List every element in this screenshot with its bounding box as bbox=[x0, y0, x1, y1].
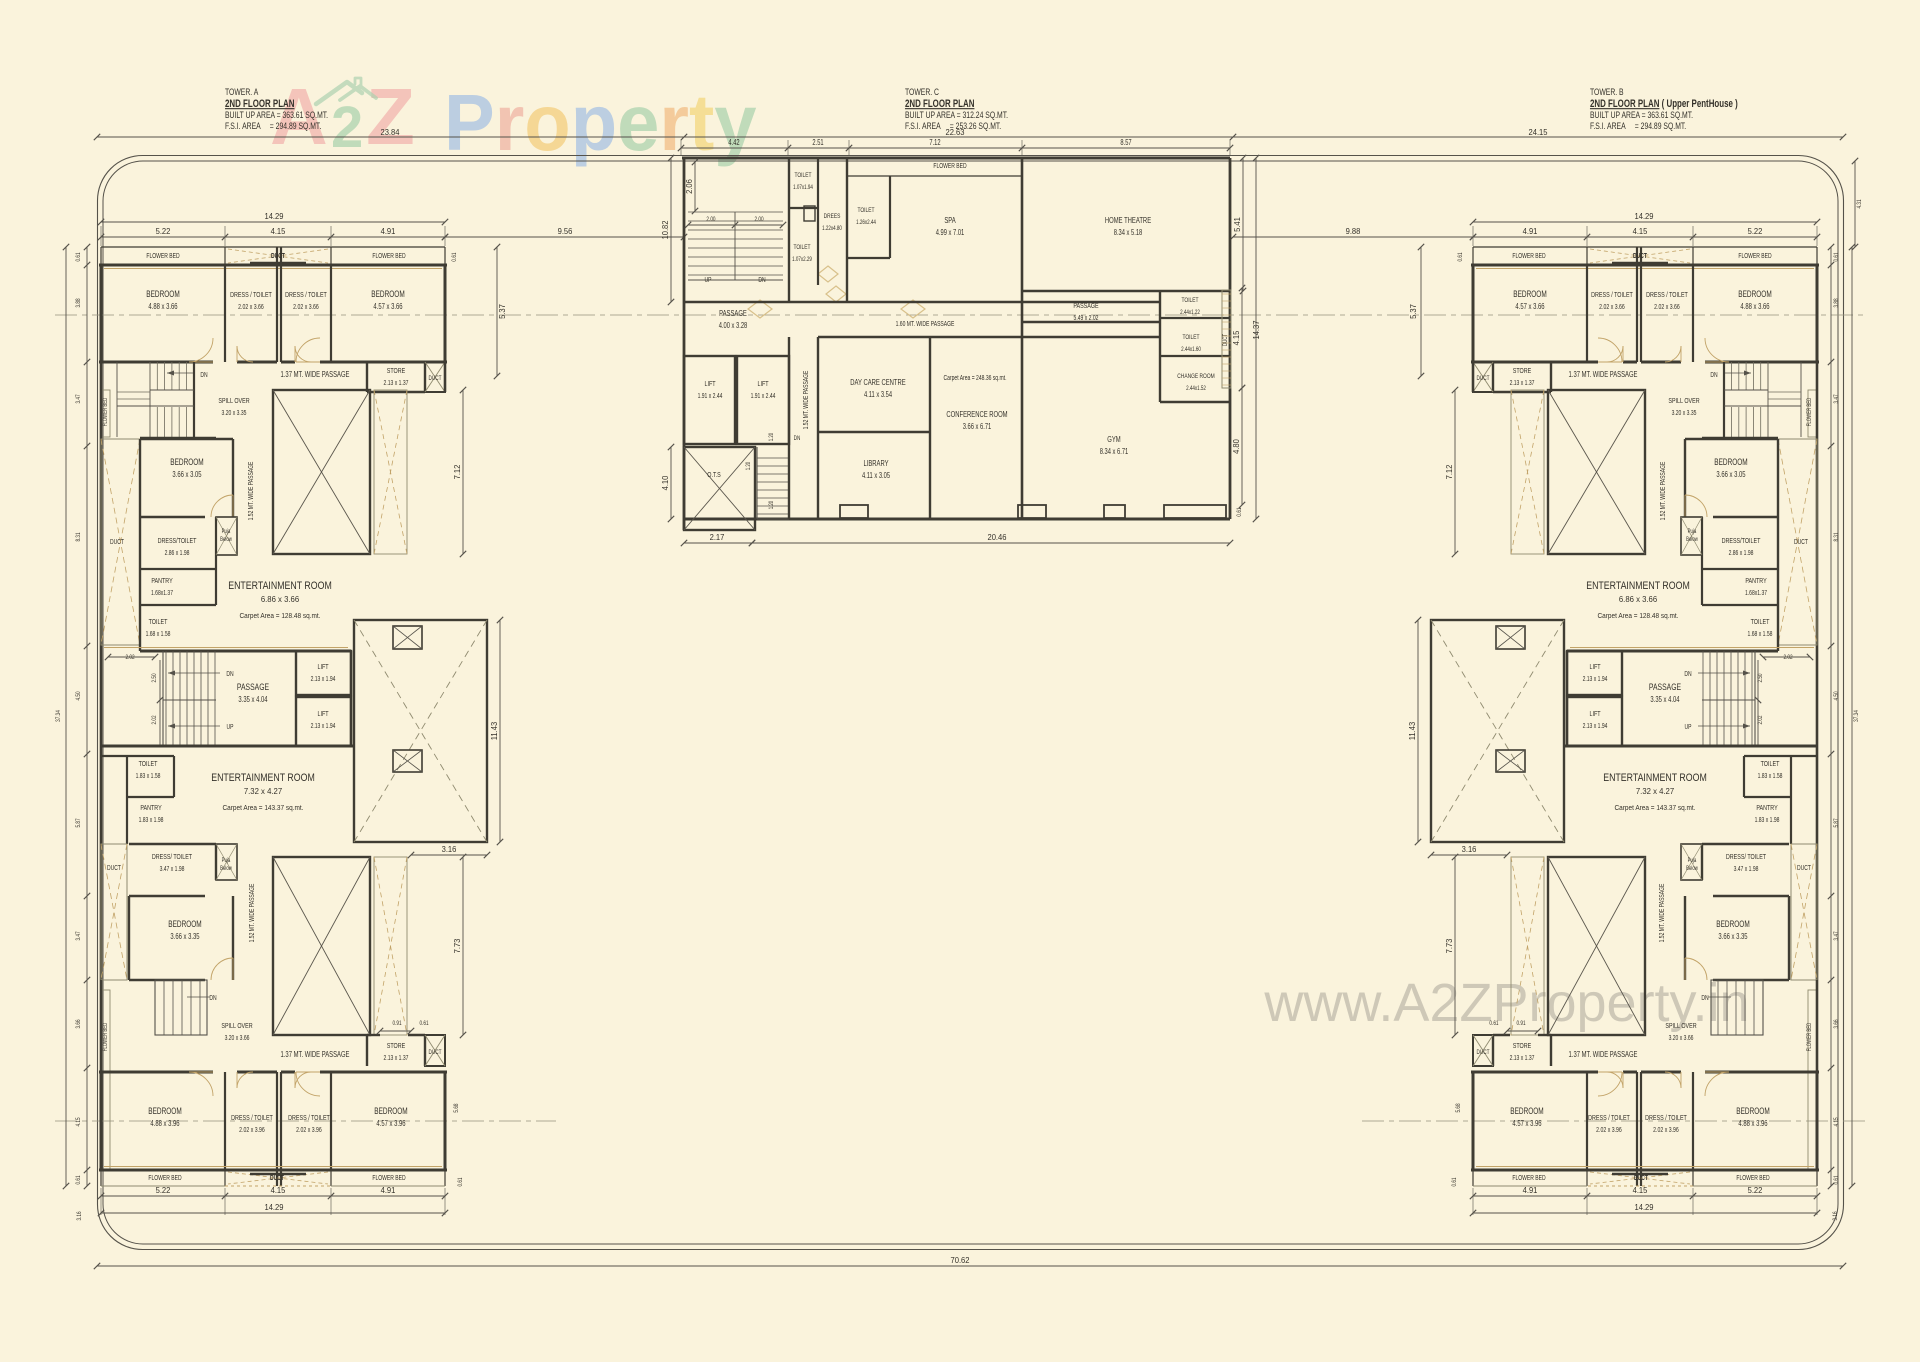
svg-text:2.02 x 3.66: 2.02 x 3.66 bbox=[1599, 303, 1625, 311]
svg-text:1.68 x 1.58: 1.68 x 1.58 bbox=[1748, 630, 1773, 638]
svg-text:24.15: 24.15 bbox=[1528, 128, 1548, 137]
svg-text:2.02 x 3.66: 2.02 x 3.66 bbox=[1654, 303, 1680, 311]
svg-text:0.61: 0.61 bbox=[1833, 252, 1840, 261]
svg-text:LIFT: LIFT bbox=[1589, 663, 1600, 671]
svg-text:FLOWER BED: FLOWER BED bbox=[1806, 1023, 1813, 1052]
svg-text:DUCT: DUCT bbox=[1477, 375, 1490, 382]
svg-text:0.61: 0.61 bbox=[419, 1020, 428, 1027]
svg-text:3.16: 3.16 bbox=[1462, 845, 1477, 854]
svg-text:4.10: 4.10 bbox=[661, 475, 670, 490]
svg-text:TOILET: TOILET bbox=[139, 760, 158, 768]
svg-text:3.20 x 3.66: 3.20 x 3.66 bbox=[1669, 1034, 1694, 1042]
svg-text:2ND FLOOR PLAN: 2ND FLOOR PLAN bbox=[225, 98, 295, 111]
svg-text:PASSAGE: PASSAGE bbox=[1649, 682, 1682, 692]
svg-text:TOWER. C: TOWER. C bbox=[905, 87, 939, 97]
svg-text:3.20 x 3.66: 3.20 x 3.66 bbox=[225, 1034, 250, 1042]
svg-text:3.35 x 4.04: 3.35 x 4.04 bbox=[1650, 695, 1679, 704]
svg-text:0.91: 0.91 bbox=[392, 1020, 401, 1027]
svg-text:4.15: 4.15 bbox=[1232, 330, 1241, 345]
svg-text:DUCT: DUCT bbox=[1222, 333, 1229, 346]
svg-text:0.91: 0.91 bbox=[1516, 1020, 1525, 1027]
svg-text:BEDROOM: BEDROOM bbox=[1714, 457, 1747, 467]
svg-text:TOWER. A: TOWER. A bbox=[225, 87, 259, 97]
svg-text:TOILET: TOILET bbox=[793, 244, 810, 251]
svg-text:O.T.S: O.T.S bbox=[707, 471, 721, 479]
svg-text:FLOWER BED: FLOWER BED bbox=[1806, 398, 1813, 427]
svg-text:DRESS / TOILET: DRESS / TOILET bbox=[1588, 1114, 1630, 1122]
svg-text:DREES: DREES bbox=[824, 213, 841, 220]
svg-text:LIFT: LIFT bbox=[317, 710, 328, 718]
svg-text:HOME THEATRE: HOME THEATRE bbox=[1105, 216, 1151, 225]
svg-text:3.66 x 3.05: 3.66 x 3.05 bbox=[172, 470, 201, 479]
svg-text:DUCT: DUCT bbox=[1634, 1174, 1648, 1182]
svg-text:1.83 x 1.58: 1.83 x 1.58 bbox=[136, 772, 161, 780]
svg-text:5.22: 5.22 bbox=[1748, 1186, 1763, 1195]
svg-text:20.46: 20.46 bbox=[987, 533, 1006, 542]
svg-text:F.S.I. AREA = 294.89 SQ.M: F.S.I. AREA = 294.89 SQ.MT. bbox=[225, 121, 321, 131]
svg-text:ENTERTAINMENT ROOM: ENTERTAINMENT ROOM bbox=[211, 772, 315, 784]
svg-text:1.68x1.37: 1.68x1.37 bbox=[1745, 589, 1768, 597]
svg-text:Carpet Area = 128.48 sq.mt.: Carpet Area = 128.48 sq.mt. bbox=[1598, 613, 1679, 620]
svg-text:1.07x2.29: 1.07x2.29 bbox=[792, 256, 812, 263]
svg-text:1.52 MT. WIDE PASSAGE: 1.52 MT. WIDE PASSAGE bbox=[248, 884, 256, 943]
svg-text:3.20 x 3.35: 3.20 x 3.35 bbox=[222, 409, 247, 417]
svg-text:9.88: 9.88 bbox=[1346, 227, 1361, 236]
svg-text:10.82: 10.82 bbox=[661, 220, 670, 239]
svg-text:FLOWER BED: FLOWER BED bbox=[1736, 1174, 1770, 1182]
svg-text:SPILL OVER: SPILL OVER bbox=[221, 1022, 252, 1030]
svg-text:2: 2 bbox=[331, 95, 363, 160]
svg-text:2.50: 2.50 bbox=[1757, 673, 1764, 682]
svg-text:4.57 x 3.96: 4.57 x 3.96 bbox=[1512, 1119, 1541, 1128]
svg-text:3.47: 3.47 bbox=[75, 931, 82, 940]
svg-text:2ND FLOOR PLAN: 2ND FLOOR PLAN bbox=[905, 98, 975, 111]
svg-text:1.20: 1.20 bbox=[768, 433, 775, 441]
svg-text:0.61: 0.61 bbox=[1833, 1175, 1840, 1184]
svg-text:FLOWER BED: FLOWER BED bbox=[1738, 252, 1772, 260]
svg-text:37.34: 37.34 bbox=[55, 710, 62, 722]
svg-text:7.12: 7.12 bbox=[1445, 465, 1454, 480]
svg-text:4.15: 4.15 bbox=[75, 1117, 82, 1126]
svg-text:2.13 x 1.94: 2.13 x 1.94 bbox=[311, 675, 336, 683]
svg-text:7.32 x 4.27: 7.32 x 4.27 bbox=[244, 787, 283, 796]
svg-text:70.62: 70.62 bbox=[950, 1256, 969, 1265]
svg-text:2.02 x 3.66: 2.02 x 3.66 bbox=[293, 303, 319, 311]
svg-text:2.13 x 1.37: 2.13 x 1.37 bbox=[1510, 379, 1535, 387]
svg-text:2.13 x 1.37: 2.13 x 1.37 bbox=[384, 1054, 409, 1062]
svg-text:FLOWER BED: FLOWER BED bbox=[372, 252, 406, 260]
svg-text:DRESS / TOILET: DRESS / TOILET bbox=[230, 291, 272, 299]
svg-text:5.68: 5.68 bbox=[453, 1103, 460, 1112]
svg-text:3.16: 3.16 bbox=[76, 1211, 83, 1220]
svg-text:3.66 x 6.71: 3.66 x 6.71 bbox=[963, 423, 992, 431]
svg-text:1.83 x 1.58: 1.83 x 1.58 bbox=[1758, 772, 1783, 780]
svg-text:3.66: 3.66 bbox=[1833, 1019, 1840, 1028]
svg-text:4.11 x 3.54: 4.11 x 3.54 bbox=[864, 391, 892, 399]
svg-text:11.43: 11.43 bbox=[1408, 722, 1417, 740]
svg-text:1.37 MT. WIDE PASSAGE: 1.37 MT. WIDE PASSAGE bbox=[1569, 370, 1638, 379]
svg-text:1.83 x 1.98: 1.83 x 1.98 bbox=[139, 816, 164, 824]
svg-text:1.37 MT. WIDE PASSAGE: 1.37 MT. WIDE PASSAGE bbox=[281, 370, 350, 379]
svg-text:Puja: Puja bbox=[1688, 857, 1697, 864]
svg-text:0.61: 0.61 bbox=[457, 1177, 464, 1186]
svg-text:3.47: 3.47 bbox=[75, 394, 82, 403]
svg-text:BEDROOM: BEDROOM bbox=[1716, 919, 1749, 929]
svg-text:4.57 x 3.66: 4.57 x 3.66 bbox=[373, 302, 402, 311]
svg-text:F.S.I. AREA = 253.26 SQ.M: F.S.I. AREA = 253.26 SQ.MT. bbox=[905, 121, 1001, 131]
svg-text:4.88 x 3.66: 4.88 x 3.66 bbox=[1740, 302, 1769, 311]
svg-text:Puja: Puja bbox=[222, 857, 231, 864]
svg-text:FLOWER BED: FLOWER BED bbox=[1512, 252, 1546, 260]
svg-text:2.13 x 1.37: 2.13 x 1.37 bbox=[1510, 1054, 1535, 1062]
svg-text:DUCT: DUCT bbox=[1633, 252, 1647, 260]
svg-text:0.61: 0.61 bbox=[451, 252, 458, 261]
svg-text:3.47 x 1.98: 3.47 x 1.98 bbox=[1734, 865, 1759, 873]
svg-text:4.42: 4.42 bbox=[728, 139, 739, 147]
svg-text:7.73: 7.73 bbox=[453, 939, 462, 954]
svg-text:BEDROOM: BEDROOM bbox=[168, 919, 201, 929]
svg-text:DRESS / TOILET: DRESS / TOILET bbox=[285, 291, 327, 299]
svg-text:Below: Below bbox=[220, 865, 232, 872]
svg-text:UP: UP bbox=[1685, 723, 1692, 731]
svg-text:TOILET: TOILET bbox=[149, 618, 168, 626]
svg-text:5.87: 5.87 bbox=[1833, 818, 1840, 827]
svg-text:2.44x1.60: 2.44x1.60 bbox=[1181, 346, 1201, 353]
svg-text:4.11 x 3.05: 4.11 x 3.05 bbox=[862, 472, 890, 480]
svg-text:STORE: STORE bbox=[1513, 1042, 1532, 1050]
svg-text:STORE: STORE bbox=[387, 1042, 406, 1050]
svg-text:LIFT: LIFT bbox=[1589, 710, 1600, 718]
svg-text:BUILT UP AREA = 363.61 SQ.MT.: BUILT UP AREA = 363.61 SQ.MT. bbox=[225, 110, 328, 120]
svg-text:PANTRY: PANTRY bbox=[140, 804, 162, 812]
svg-text:2.00: 2.00 bbox=[754, 216, 763, 223]
svg-text:4.57 x 3.66: 4.57 x 3.66 bbox=[1515, 302, 1544, 311]
svg-text:DUCT: DUCT bbox=[1794, 538, 1808, 546]
svg-text:4.91: 4.91 bbox=[381, 1186, 396, 1195]
svg-text:FLOWER BED: FLOWER BED bbox=[933, 162, 967, 170]
svg-text:2.44x1.52: 2.44x1.52 bbox=[1186, 385, 1206, 392]
svg-text:FLOWER BED: FLOWER BED bbox=[102, 398, 109, 427]
svg-text:PANTRY: PANTRY bbox=[1745, 577, 1767, 585]
svg-text:FLOWER BED: FLOWER BED bbox=[372, 1174, 406, 1182]
svg-text:1.26x2.44: 1.26x2.44 bbox=[856, 219, 876, 226]
svg-text:SPILL OVER: SPILL OVER bbox=[218, 397, 249, 405]
svg-text:7.73: 7.73 bbox=[1445, 939, 1454, 954]
svg-text:DUCT: DUCT bbox=[429, 1049, 442, 1056]
svg-text:4.15: 4.15 bbox=[271, 227, 286, 236]
svg-text:3.16: 3.16 bbox=[442, 845, 457, 854]
svg-text:4.31: 4.31 bbox=[1856, 199, 1863, 208]
svg-text:PASSAGE: PASSAGE bbox=[1073, 302, 1099, 310]
svg-text:11.43: 11.43 bbox=[490, 722, 499, 740]
svg-text:DN: DN bbox=[1710, 371, 1717, 379]
svg-text:1.83 x 1.98: 1.83 x 1.98 bbox=[1755, 816, 1780, 824]
svg-text:DRESS / TOILET: DRESS / TOILET bbox=[1645, 1114, 1687, 1122]
svg-text:3.66: 3.66 bbox=[75, 1019, 82, 1028]
svg-text:1.07x1.94: 1.07x1.94 bbox=[793, 184, 813, 191]
svg-text:DN: DN bbox=[1684, 670, 1691, 678]
svg-text:1.37 MT. WIDE PASSAGE: 1.37 MT. WIDE PASSAGE bbox=[281, 1050, 350, 1059]
svg-text:1.52 MT. WIDE PASSAGE: 1.52 MT. WIDE PASSAGE bbox=[247, 462, 255, 521]
svg-text:Puja: Puja bbox=[222, 528, 231, 535]
svg-text:2.86 x 1.98: 2.86 x 1.98 bbox=[165, 549, 190, 557]
svg-text:7.32 x 4.27: 7.32 x 4.27 bbox=[1636, 787, 1675, 796]
svg-text:2.44x1.22: 2.44x1.22 bbox=[1180, 309, 1200, 316]
svg-text:Carpet Area = 248.36 sq.mt.: Carpet Area = 248.36 sq.mt. bbox=[944, 374, 1007, 382]
svg-text:5.22: 5.22 bbox=[1748, 227, 1763, 236]
svg-text:4.50: 4.50 bbox=[75, 691, 82, 700]
svg-text:BEDROOM: BEDROOM bbox=[374, 1106, 407, 1116]
svg-text:UP: UP bbox=[227, 723, 234, 731]
svg-text:1.60 MT. WIDE PASSAGE: 1.60 MT. WIDE PASSAGE bbox=[896, 320, 955, 328]
svg-text:0.61: 0.61 bbox=[75, 252, 82, 261]
svg-text:DUCT: DUCT bbox=[107, 864, 121, 872]
svg-text:4.15: 4.15 bbox=[1633, 1186, 1648, 1195]
svg-text:Z: Z bbox=[366, 72, 415, 161]
svg-text:4.00 x 3.28: 4.00 x 3.28 bbox=[719, 322, 748, 330]
svg-text:DN: DN bbox=[794, 435, 801, 442]
svg-text:DUCT: DUCT bbox=[271, 252, 285, 260]
svg-text:5.87: 5.87 bbox=[75, 818, 82, 827]
svg-text:3.66 x 3.35: 3.66 x 3.35 bbox=[170, 932, 199, 941]
svg-text:3.66 x 3.05: 3.66 x 3.05 bbox=[1716, 470, 1745, 479]
svg-text:3.35 x 4.04: 3.35 x 4.04 bbox=[238, 695, 267, 704]
svg-text:Carpet Area = 143.37 sq.mt.: Carpet Area = 143.37 sq.mt. bbox=[223, 805, 304, 812]
svg-text:SPILL OVER: SPILL OVER bbox=[1668, 397, 1699, 405]
svg-text:14.37: 14.37 bbox=[1252, 320, 1261, 339]
svg-text:DN: DN bbox=[758, 276, 765, 284]
svg-text:1.52 MT. WIDE PASSAGE: 1.52 MT. WIDE PASSAGE bbox=[1659, 462, 1667, 521]
svg-text:4.15: 4.15 bbox=[1633, 227, 1648, 236]
svg-text:1.20: 1.20 bbox=[745, 462, 752, 470]
svg-text:TOILET: TOILET bbox=[1751, 618, 1770, 626]
svg-text:14.29: 14.29 bbox=[264, 1203, 283, 1212]
svg-text:BEDROOM: BEDROOM bbox=[371, 289, 404, 299]
svg-text:3.66 x 3.35: 3.66 x 3.35 bbox=[1718, 932, 1747, 941]
svg-text:2.02: 2.02 bbox=[151, 715, 158, 724]
svg-text:ENTERTAINMENT ROOM: ENTERTAINMENT ROOM bbox=[1603, 772, 1707, 784]
svg-text:23.84: 23.84 bbox=[380, 128, 400, 137]
svg-text:2ND FLOOR PLAN ( Upper PentHou: 2ND FLOOR PLAN ( Upper PentHouse ) bbox=[1590, 98, 1738, 111]
svg-text:Below: Below bbox=[1686, 865, 1698, 872]
svg-text:4.91: 4.91 bbox=[381, 227, 396, 236]
svg-text:1.91 x 2.44: 1.91 x 2.44 bbox=[751, 392, 776, 400]
svg-text:FLOWER BED: FLOWER BED bbox=[148, 1174, 182, 1182]
svg-text:TOILET: TOILET bbox=[1761, 760, 1780, 768]
svg-text:0.61: 0.61 bbox=[1236, 507, 1243, 516]
svg-text:2.51: 2.51 bbox=[812, 139, 823, 147]
svg-text:Puja: Puja bbox=[1688, 528, 1697, 535]
svg-text:BEDROOM: BEDROOM bbox=[1510, 1106, 1543, 1116]
svg-text:DUCT: DUCT bbox=[429, 375, 442, 382]
svg-text:5.49 x 2.02: 5.49 x 2.02 bbox=[1074, 314, 1099, 322]
svg-text:3.88: 3.88 bbox=[1833, 298, 1840, 307]
svg-text:TOILET: TOILET bbox=[1183, 334, 1200, 341]
svg-text:TOILET: TOILET bbox=[794, 172, 811, 179]
svg-text:BEDROOM: BEDROOM bbox=[1736, 1106, 1769, 1116]
svg-text:4.80: 4.80 bbox=[1232, 438, 1241, 453]
svg-text:0.61: 0.61 bbox=[1489, 1020, 1498, 1027]
svg-text:4.15: 4.15 bbox=[1833, 1117, 1840, 1126]
svg-text:DN: DN bbox=[200, 371, 207, 379]
svg-text:DAY CARE CENTRE: DAY CARE CENTRE bbox=[850, 378, 906, 387]
svg-text:2.13 x 1.94: 2.13 x 1.94 bbox=[1583, 675, 1608, 683]
svg-text:LIFT: LIFT bbox=[317, 663, 328, 671]
svg-text:DRESS / TOILET: DRESS / TOILET bbox=[231, 1114, 273, 1122]
svg-text:BUILT UP AREA = 312.24 SQ.MT.: BUILT UP AREA = 312.24 SQ.MT. bbox=[905, 110, 1008, 120]
svg-text:6.86 x 3.66: 6.86 x 3.66 bbox=[261, 595, 300, 604]
svg-text:PASSAGE: PASSAGE bbox=[237, 682, 270, 692]
svg-text:2.02 x 3.96: 2.02 x 3.96 bbox=[1653, 1126, 1679, 1134]
svg-text:LIFT: LIFT bbox=[757, 380, 768, 388]
svg-text:BEDROOM: BEDROOM bbox=[1738, 289, 1771, 299]
svg-text:7.12: 7.12 bbox=[929, 139, 940, 147]
svg-text:2.06: 2.06 bbox=[685, 179, 694, 194]
svg-text:DRESS / TOILET: DRESS / TOILET bbox=[288, 1114, 330, 1122]
svg-text:14.29: 14.29 bbox=[264, 212, 283, 221]
svg-text:CHANGE ROOM: CHANGE ROOM bbox=[1177, 373, 1214, 380]
svg-text:1.91 x 2.44: 1.91 x 2.44 bbox=[698, 392, 723, 400]
svg-text:DN: DN bbox=[1701, 994, 1708, 1002]
svg-text:4.50: 4.50 bbox=[1833, 691, 1840, 700]
svg-text:0.61: 0.61 bbox=[75, 1175, 82, 1184]
svg-text:8.34 x 5.18: 8.34 x 5.18 bbox=[1114, 229, 1143, 237]
svg-text:DUCT: DUCT bbox=[1477, 1049, 1490, 1056]
svg-text:8.57: 8.57 bbox=[1120, 139, 1131, 147]
svg-text:LIBRARY: LIBRARY bbox=[863, 459, 888, 468]
svg-text:1.68x1.37: 1.68x1.37 bbox=[151, 589, 174, 597]
svg-text:2.02: 2.02 bbox=[125, 654, 134, 661]
svg-text:14.29: 14.29 bbox=[1634, 212, 1653, 221]
svg-text:DUCT: DUCT bbox=[1797, 864, 1811, 872]
svg-text:4.15: 4.15 bbox=[271, 1186, 286, 1195]
svg-text:DUCT: DUCT bbox=[270, 1174, 284, 1182]
svg-text:BEDROOM: BEDROOM bbox=[146, 289, 179, 299]
svg-text:STORE: STORE bbox=[387, 367, 406, 375]
svg-text:Carpet Area = 128.48 sq.mt.: Carpet Area = 128.48 sq.mt. bbox=[240, 613, 321, 620]
svg-text:BEDROOM: BEDROOM bbox=[170, 457, 203, 467]
svg-text:SPILL OVER: SPILL OVER bbox=[1665, 1022, 1696, 1030]
svg-text:3.47 x 1.98: 3.47 x 1.98 bbox=[160, 865, 185, 873]
svg-text:4.88 x 3.96: 4.88 x 3.96 bbox=[150, 1119, 179, 1128]
svg-text:F.S.I. AREA = 294.89 SQ.M: F.S.I. AREA = 294.89 SQ.MT. bbox=[1590, 121, 1686, 131]
svg-text:FLOWER BED: FLOWER BED bbox=[1512, 1174, 1546, 1182]
svg-text:8.31: 8.31 bbox=[75, 532, 82, 541]
svg-text:2.13 x 1.94: 2.13 x 1.94 bbox=[311, 722, 336, 730]
svg-text:1.52 MT. WIDE PASSAGE: 1.52 MT. WIDE PASSAGE bbox=[1658, 884, 1666, 943]
svg-text:5.37: 5.37 bbox=[498, 304, 507, 319]
svg-text:PANTRY: PANTRY bbox=[151, 577, 173, 585]
svg-text:4.91: 4.91 bbox=[1523, 227, 1538, 236]
svg-text:2.02 x 3.66: 2.02 x 3.66 bbox=[238, 303, 264, 311]
svg-text:DUCT: DUCT bbox=[110, 538, 124, 546]
svg-text:2.02: 2.02 bbox=[1757, 715, 1764, 724]
svg-text:5.68: 5.68 bbox=[1455, 1103, 1462, 1112]
svg-text:8.31: 8.31 bbox=[1833, 532, 1840, 541]
svg-text:1.22x4.80: 1.22x4.80 bbox=[822, 225, 842, 232]
svg-text:8.34 x 6.71: 8.34 x 6.71 bbox=[1100, 448, 1129, 456]
svg-text:2.17: 2.17 bbox=[710, 533, 725, 542]
svg-text:3.47: 3.47 bbox=[1833, 931, 1840, 940]
svg-text:3.47: 3.47 bbox=[1833, 394, 1840, 403]
svg-text:ENTERTAINMENT ROOM: ENTERTAINMENT ROOM bbox=[1586, 580, 1690, 592]
svg-text:DRESS / TOILET: DRESS / TOILET bbox=[1591, 291, 1633, 299]
svg-text:14.29: 14.29 bbox=[1634, 1203, 1653, 1212]
svg-text:3.88: 3.88 bbox=[75, 298, 82, 307]
svg-text:2.00: 2.00 bbox=[706, 216, 715, 223]
svg-text:PANTRY: PANTRY bbox=[1756, 804, 1778, 812]
svg-text:FLOWER BED: FLOWER BED bbox=[146, 252, 180, 260]
svg-text:2.02 x 3.96: 2.02 x 3.96 bbox=[239, 1126, 265, 1134]
svg-text:DRESS / TOILET: DRESS / TOILET bbox=[1646, 291, 1688, 299]
svg-text:5.22: 5.22 bbox=[156, 227, 171, 236]
svg-text:37.34: 37.34 bbox=[1853, 710, 1860, 722]
svg-text:Below: Below bbox=[1686, 536, 1698, 543]
svg-text:2.86 x 1.98: 2.86 x 1.98 bbox=[1729, 549, 1754, 557]
svg-text:5.22: 5.22 bbox=[156, 1186, 171, 1195]
svg-text:1.37 MT. WIDE PASSAGE: 1.37 MT. WIDE PASSAGE bbox=[1569, 1050, 1638, 1059]
svg-text:DN: DN bbox=[226, 670, 233, 678]
svg-text:BEDROOM: BEDROOM bbox=[148, 1106, 181, 1116]
svg-text:TOILET: TOILET bbox=[1181, 297, 1198, 304]
svg-text:4.91: 4.91 bbox=[1523, 1186, 1538, 1195]
svg-text:4.57 x 3.96: 4.57 x 3.96 bbox=[376, 1119, 405, 1128]
svg-text:DRESS/TOILET: DRESS/TOILET bbox=[1722, 537, 1761, 545]
svg-text:Property: Property bbox=[444, 77, 757, 167]
svg-text:3.16: 3.16 bbox=[1832, 1211, 1839, 1220]
svg-text:TOWER. B: TOWER. B bbox=[1590, 87, 1624, 97]
svg-text:BUILT UP AREA = 363.61 SQ.MT.: BUILT UP AREA = 363.61 SQ.MT. bbox=[1590, 110, 1693, 120]
svg-text:STORE: STORE bbox=[1513, 367, 1532, 375]
svg-text:TOILET: TOILET bbox=[857, 207, 874, 214]
svg-text:CONFERENCE ROOM: CONFERENCE ROOM bbox=[946, 410, 1007, 419]
svg-text:1.68 x 1.58: 1.68 x 1.58 bbox=[146, 630, 171, 638]
svg-text:DN: DN bbox=[209, 994, 216, 1002]
svg-text:DRESS/ TOILET: DRESS/ TOILET bbox=[152, 853, 192, 861]
svg-text:9.56: 9.56 bbox=[558, 227, 573, 236]
svg-text:1.52 MT. WIDE PASSAGE: 1.52 MT. WIDE PASSAGE bbox=[802, 371, 810, 430]
svg-text:GYM: GYM bbox=[1107, 435, 1120, 444]
svg-text:PASSAGE: PASSAGE bbox=[719, 309, 747, 318]
svg-text:BEDROOM: BEDROOM bbox=[1513, 289, 1546, 299]
svg-text:7.12: 7.12 bbox=[453, 465, 462, 480]
svg-text:2.02: 2.02 bbox=[1783, 654, 1792, 661]
svg-text:0.61: 0.61 bbox=[1451, 1177, 1458, 1186]
svg-text:2.13 x 1.94: 2.13 x 1.94 bbox=[1583, 722, 1608, 730]
svg-text:2.50: 2.50 bbox=[151, 673, 158, 682]
svg-text:5.37: 5.37 bbox=[1409, 304, 1418, 319]
svg-text:SPA: SPA bbox=[944, 216, 956, 225]
svg-text:2.02 x 3.96: 2.02 x 3.96 bbox=[1596, 1126, 1622, 1134]
svg-text:DRESS/ TOILET: DRESS/ TOILET bbox=[1726, 853, 1766, 861]
svg-text:LIFT: LIFT bbox=[704, 380, 715, 388]
svg-text:2.02 x 3.96: 2.02 x 3.96 bbox=[296, 1126, 322, 1134]
svg-text:2.13 x 1.37: 2.13 x 1.37 bbox=[384, 379, 409, 387]
svg-text:4.88 x 3.96: 4.88 x 3.96 bbox=[1738, 1119, 1767, 1128]
svg-text:DRESS/TOILET: DRESS/TOILET bbox=[158, 537, 197, 545]
svg-text:UP: UP bbox=[705, 276, 712, 284]
svg-text:0.61: 0.61 bbox=[1457, 252, 1464, 261]
svg-text:Below: Below bbox=[220, 536, 232, 543]
svg-text:5.41: 5.41 bbox=[1233, 217, 1242, 232]
svg-text:Carpet Area = 143.37 sq.mt.: Carpet Area = 143.37 sq.mt. bbox=[1615, 805, 1696, 812]
svg-text:4.88 x 3.66: 4.88 x 3.66 bbox=[148, 302, 177, 311]
svg-text:FLOWER BED: FLOWER BED bbox=[102, 1023, 109, 1052]
svg-text:1.20: 1.20 bbox=[768, 501, 775, 509]
svg-text:4.99 x 7.01: 4.99 x 7.01 bbox=[936, 229, 965, 237]
svg-text:3.20 x 3.35: 3.20 x 3.35 bbox=[1672, 409, 1697, 417]
svg-text:ENTERTAINMENT ROOM: ENTERTAINMENT ROOM bbox=[228, 580, 332, 592]
